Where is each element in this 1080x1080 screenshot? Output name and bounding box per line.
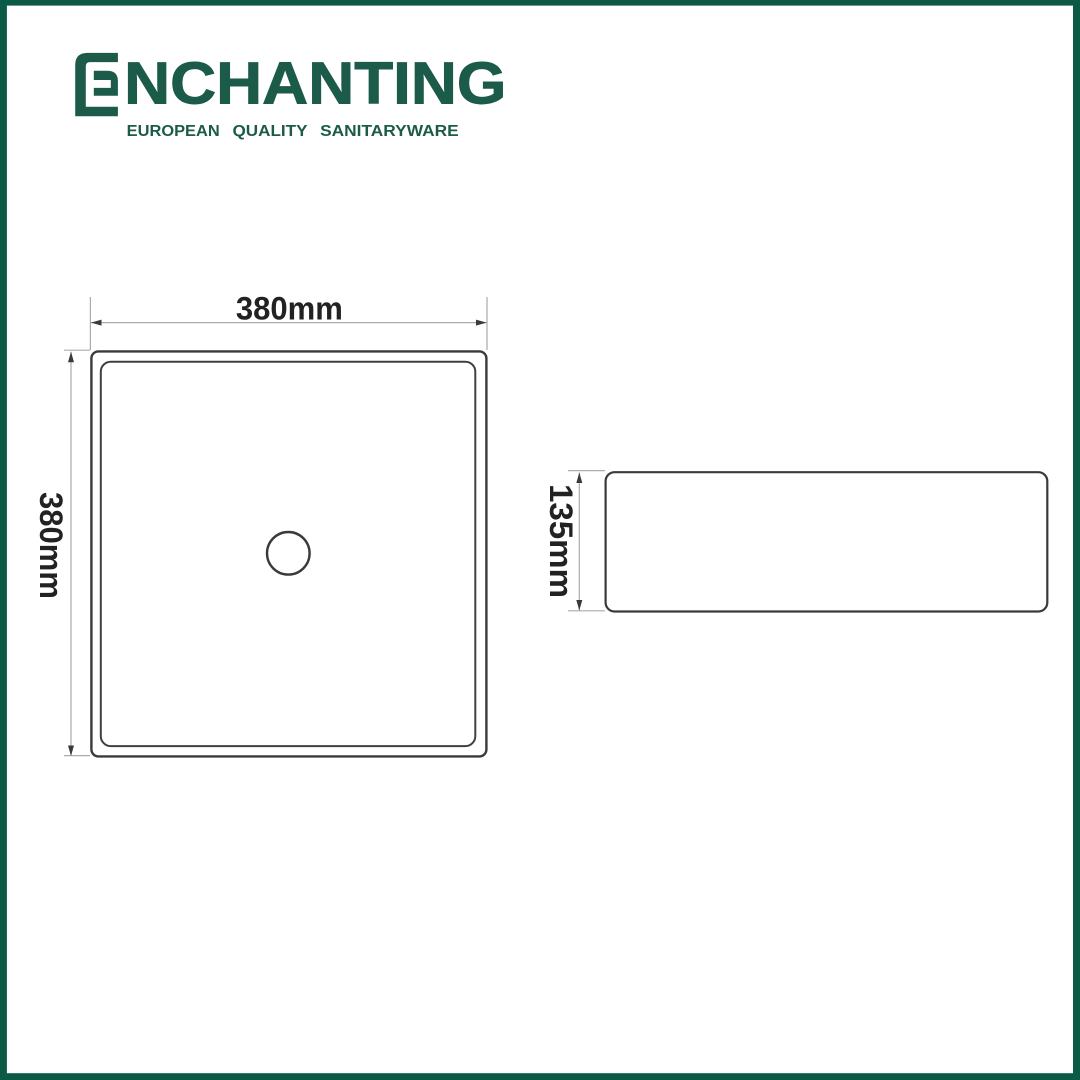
svg-text:135mm: 135mm — [543, 484, 579, 598]
svg-text:SANITARYWARE: SANITARYWARE — [320, 123, 459, 140]
svg-text:EUROPEAN: EUROPEAN — [127, 123, 220, 140]
svg-text:QUALITY: QUALITY — [233, 123, 309, 140]
svg-text:380mm: 380mm — [236, 290, 343, 326]
svg-text:NCHANTING: NCHANTING — [124, 49, 506, 116]
svg-text:380mm: 380mm — [33, 492, 69, 599]
